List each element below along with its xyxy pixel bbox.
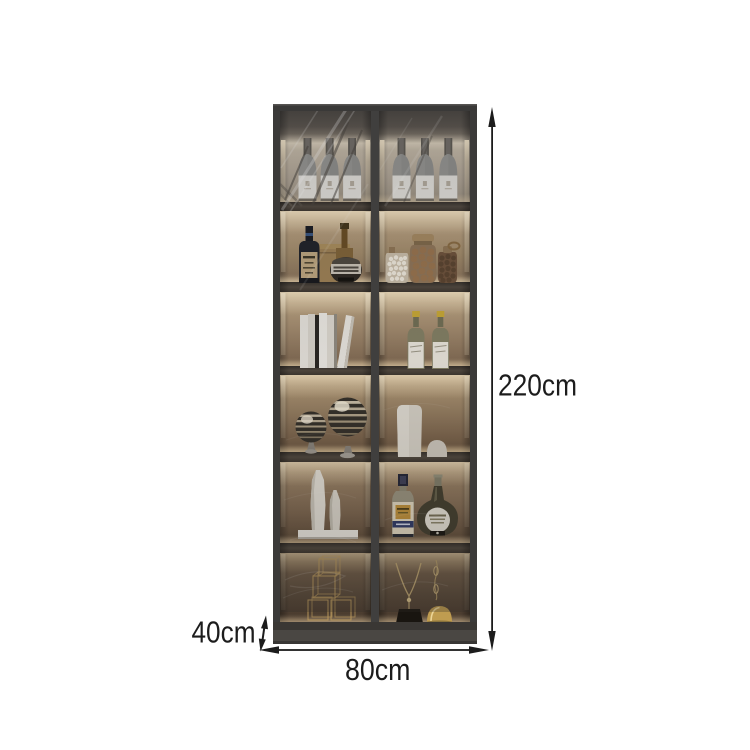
svg-text:80cm: 80cm	[345, 653, 411, 687]
svg-text:220cm: 220cm	[498, 369, 577, 403]
svg-text:40cm: 40cm	[192, 616, 256, 650]
